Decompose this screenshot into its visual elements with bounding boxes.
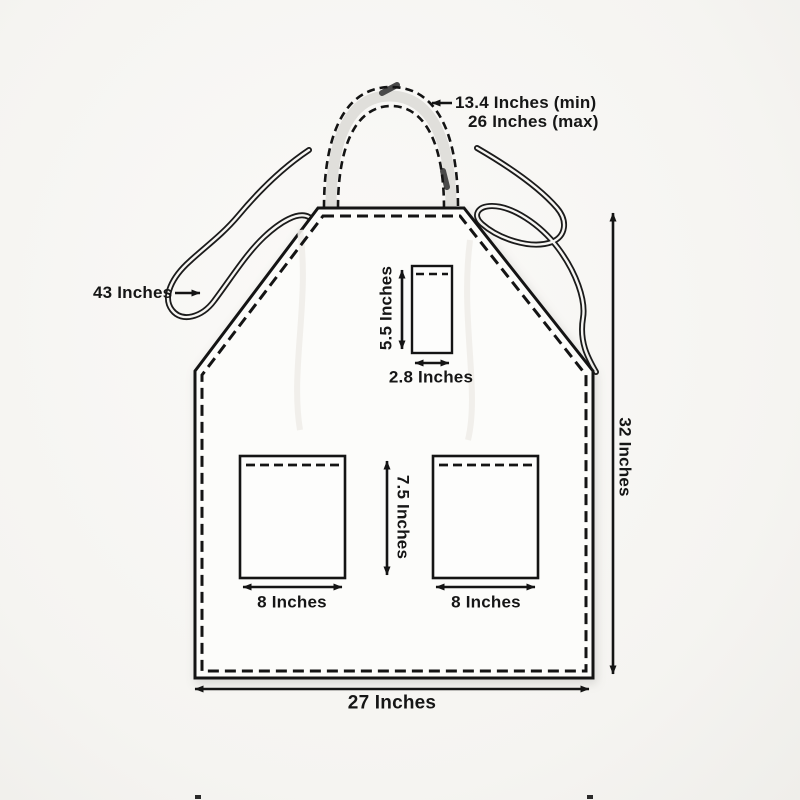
apron-width-label: 27 Inches (348, 694, 436, 713)
crop-mark (195, 795, 201, 799)
lower-pocket-height-label: 7.5 Inches (395, 475, 412, 559)
chest-pocket (412, 266, 452, 353)
strap-outer-edge (324, 87, 458, 208)
chest-pocket-width-label: 2.8 Inches (389, 369, 473, 386)
neck-strap-max-label: 26 Inches (max) (468, 113, 599, 130)
diagram-canvas (0, 0, 800, 800)
waist-tie-length-label: 43 Inches (93, 284, 172, 301)
right-pocket-width-label: 8 Inches (451, 594, 521, 611)
apron-dimension-diagram: 13.4 Inches (min) 26 Inches (max) 43 Inc… (0, 0, 800, 800)
left-pocket-width-label: 8 Inches (257, 594, 327, 611)
crop-mark (587, 795, 593, 799)
chest-pocket-height-label: 5.5 Inches (378, 266, 395, 350)
apron-length-label: 32 Inches (617, 417, 634, 496)
lower-left-pocket (240, 456, 345, 578)
lower-right-pocket (433, 456, 538, 578)
neck-strap-min-label: 13.4 Inches (min) (455, 94, 596, 111)
